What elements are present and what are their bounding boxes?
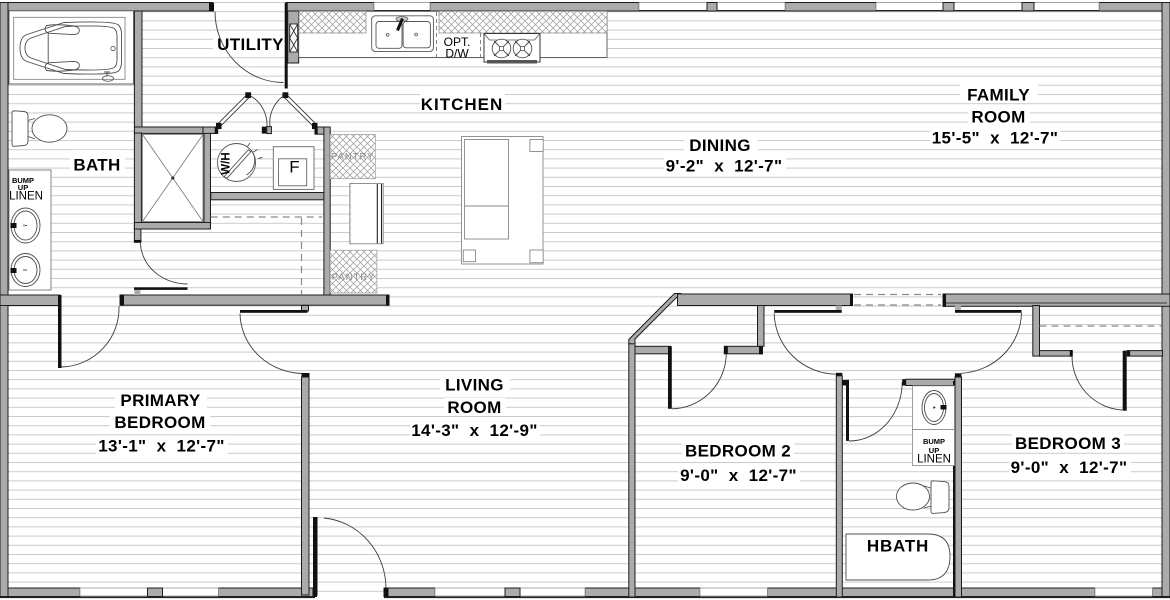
svg-text:BEDROOM 2: BEDROOM 2 xyxy=(685,442,791,461)
svg-text:14'-3" x 12'-9": 14'-3" x 12'-9" xyxy=(411,421,538,440)
svg-text:9'-2" x 12'-7": 9'-2" x 12'-7" xyxy=(666,157,783,176)
svg-text:BEDROOM: BEDROOM xyxy=(114,413,205,432)
svg-text:UTILITY: UTILITY xyxy=(217,35,284,54)
svg-text:LINEN: LINEN xyxy=(9,191,43,203)
svg-text:PRIMARY: PRIMARY xyxy=(120,391,201,410)
svg-text:BATH: BATH xyxy=(73,156,120,175)
svg-text:BUMP: BUMP xyxy=(923,437,945,446)
svg-text:DINING: DINING xyxy=(689,136,751,155)
svg-text:13'-1" x 12'-7": 13'-1" x 12'-7" xyxy=(98,437,225,456)
svg-text:FAMILY: FAMILY xyxy=(967,86,1030,105)
svg-text:D/W: D/W xyxy=(445,47,469,61)
svg-text:15'-5" x 12'-7": 15'-5" x 12'-7" xyxy=(932,129,1059,148)
svg-text:F: F xyxy=(289,158,299,177)
svg-text:BEDROOM 3: BEDROOM 3 xyxy=(1015,434,1121,453)
svg-text:LINEN: LINEN xyxy=(917,454,951,466)
svg-text:HBATH: HBATH xyxy=(867,537,929,556)
svg-text:KITCHEN: KITCHEN xyxy=(421,95,504,114)
svg-text:PANTRY: PANTRY xyxy=(332,272,376,283)
svg-text:9'-0" x 12'-7": 9'-0" x 12'-7" xyxy=(680,466,797,485)
svg-text:W/H: W/H xyxy=(221,152,233,174)
svg-text:LIVING: LIVING xyxy=(445,376,504,395)
svg-text:ROOM: ROOM xyxy=(447,398,501,417)
svg-text:ROOM: ROOM xyxy=(971,108,1025,127)
svg-text:PANTRY: PANTRY xyxy=(331,152,375,163)
svg-text:9'-0" x 12'-7": 9'-0" x 12'-7" xyxy=(1011,458,1128,477)
